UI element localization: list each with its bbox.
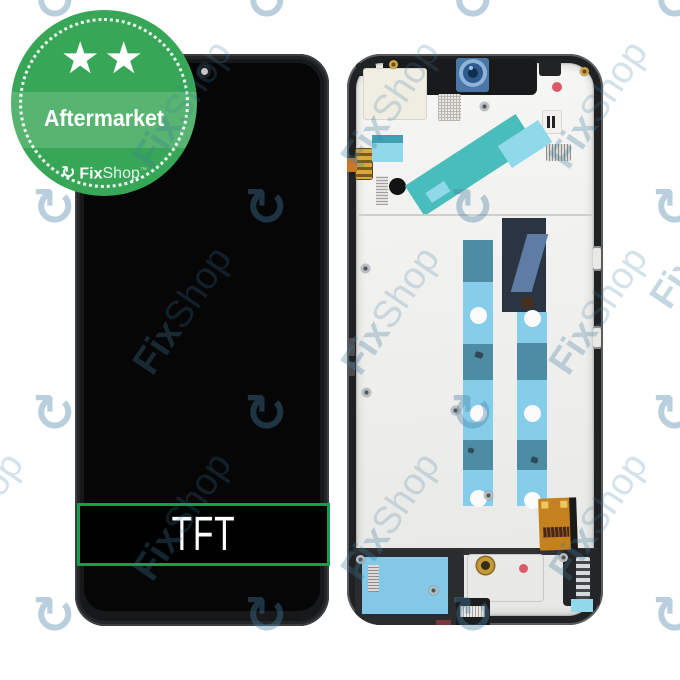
small-label-sticker: [543, 111, 561, 133]
badge-brand-logo: ↻FixShop™: [11, 161, 197, 184]
flex-label-band: [543, 527, 569, 538]
loudspeaker-module: [355, 551, 464, 625]
mic-module-sticker: [460, 606, 485, 617]
stamped-plate-outline: [363, 68, 427, 120]
side-button-tab: [593, 326, 601, 349]
watermark-refresh-icon: ↻: [652, 384, 680, 444]
top-right-bracket: [539, 61, 561, 76]
brand-name-bold: Fix: [79, 165, 102, 182]
screw: [559, 553, 568, 562]
flex-gold-pad: [541, 501, 548, 508]
mic-module: [456, 598, 490, 625]
refresh-icon: ↻: [61, 163, 75, 183]
brown-grommet: [521, 296, 534, 309]
watermark-refresh-icon: ↻: [244, 0, 288, 32]
screw: [389, 60, 398, 69]
side-button-tab: [593, 246, 601, 271]
plate-hole: [389, 178, 406, 195]
connector-pins: [576, 557, 590, 599]
watermark-refresh-icon: ↻: [652, 586, 680, 646]
slate-flex-piece: [511, 234, 549, 292]
watermark-refresh-icon: ↻: [652, 178, 680, 238]
navy-component-block: [502, 218, 546, 312]
tape-smudge: [467, 447, 474, 454]
adhesive-hole: [524, 405, 541, 422]
tft-label-band: TFT: [77, 503, 330, 566]
star-icons: ★★: [11, 34, 197, 84]
tape-smudge: [474, 351, 483, 359]
watermark-refresh-icon: ↻: [32, 384, 76, 444]
lcd-flex-cable: [538, 497, 578, 550]
adhesive-hole: [470, 307, 487, 324]
cyan-pad-teal-edge: [372, 135, 403, 143]
red-marker-dot-top: [552, 82, 562, 92]
adhesive-hole: [524, 310, 541, 327]
screw: [580, 67, 589, 76]
brand-name-light: Shop: [103, 165, 140, 182]
product-photo: TFT: [0, 0, 680, 680]
speaker-sticker: [368, 565, 379, 592]
serial-sticker: [376, 176, 388, 205]
camera-lens-glint: [469, 66, 473, 70]
screw: [451, 406, 460, 415]
watermark-refresh-icon: ↻: [450, 0, 494, 32]
tft-label: TFT: [172, 507, 236, 562]
watermark-refresh-icon: ↻: [652, 0, 680, 32]
tape-smudge: [530, 456, 539, 464]
flex-gold-pad: [560, 501, 567, 508]
adhesive-strip-left: [463, 240, 493, 506]
cyan-corner-patch: [571, 599, 593, 612]
watermark-brand-text: FixShop: [0, 445, 33, 588]
gold-screw-boss: [477, 557, 494, 574]
adhesive-hole: [470, 405, 487, 422]
adhesive-strip-right: [517, 312, 547, 506]
screw: [480, 102, 489, 111]
gold-contact-coil: [356, 149, 372, 179]
front-camera-hole: [201, 68, 208, 75]
left-rail-tab: [349, 338, 355, 356]
cyan-adhesive-pad: [372, 135, 403, 162]
coil-flex-tail: [347, 158, 357, 172]
screw: [362, 388, 371, 397]
screw: [361, 264, 370, 273]
label-glyph: [547, 116, 557, 128]
aftermarket-badge: ★★ Aftermarket ↻FixShop™: [11, 10, 197, 196]
left-rail-tab: [349, 362, 355, 376]
red-marker-dot-bottom: [519, 564, 528, 573]
screw: [356, 555, 365, 564]
trademark-mark: ™: [140, 167, 147, 174]
barcode-sticker: [546, 144, 571, 161]
badge-label: Aftermarket: [18, 105, 191, 132]
charging-port-connector: [563, 549, 600, 606]
plate-seam-line: [359, 214, 592, 216]
watermark-refresh-icon: ↻: [32, 586, 76, 646]
screw: [429, 586, 438, 595]
qr-code-sticker: [438, 94, 461, 121]
maroon-seal: [436, 620, 451, 625]
watermark-brand-text: FixShop: [642, 173, 680, 316]
frame-back-panel: [347, 54, 603, 625]
screw: [484, 491, 493, 500]
